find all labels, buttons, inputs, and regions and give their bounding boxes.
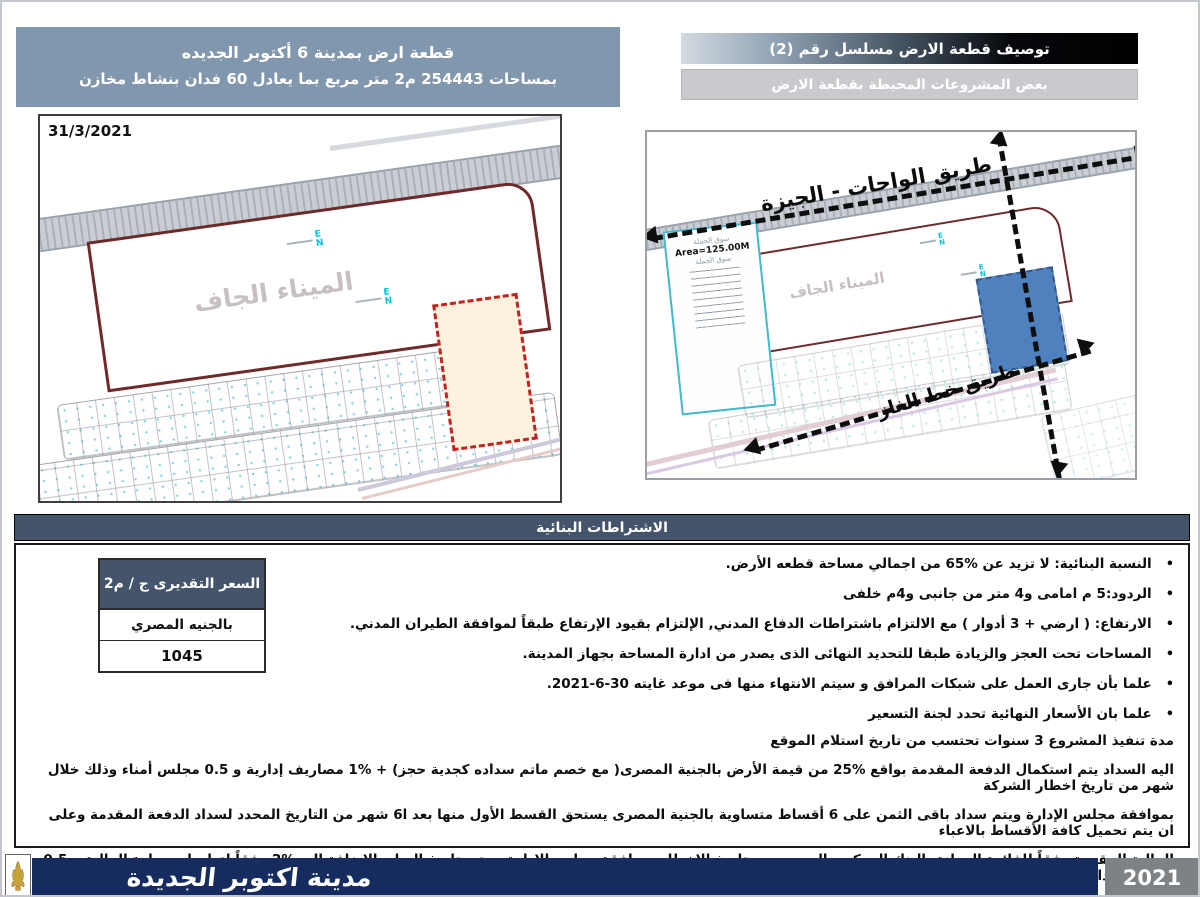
- slide: قطعة ارض بمدينة 6 أكتوبر الجديده بمساحات…: [0, 0, 1200, 897]
- plot-summary-line1: قطعة ارض بمدينة 6 أكتوبر الجديده: [16, 40, 620, 66]
- arrowhead-down: [1048, 461, 1069, 480]
- coordinate-marker: EN: [286, 230, 325, 253]
- conditions-box: النسبة البنائية: لا تزيد عن %65 من اجمال…: [14, 543, 1190, 848]
- slide-title: توصيف قطعة الارض مسلسل رقم (2): [769, 40, 1049, 58]
- map-date: 31/3/2021: [48, 122, 132, 140]
- duration-line: مدة تنفيذ المشروع 3 سنوات تحتسب من تاريخ…: [30, 733, 1174, 749]
- plot-summary-box: قطعة ارض بمدينة 6 أكتوبر الجديده بمساحات…: [16, 27, 620, 107]
- plot-summary-line2: بمساحات 254443 م2 متر مربع بما يعادل 60 …: [16, 66, 620, 92]
- coordinate-text-line: [355, 297, 381, 303]
- slide-subtitle: بعض المشروعات المحيطة بقطعة الارض: [771, 77, 1048, 93]
- road-line: [330, 114, 562, 151]
- price-table-header: السعر التقديرى ج / م2: [100, 560, 264, 610]
- coordinate-text-line: [920, 240, 936, 245]
- dry-port-label: الميناء الجاف: [192, 266, 355, 317]
- condition-item: الردود:5 م امامى و4 متر من جانبى و4م خلف…: [296, 585, 1174, 604]
- price-currency: بالجنيه المصري: [100, 610, 264, 641]
- condition-item: المساحات تحت العجز والزيادة طبقا للتحديد…: [296, 645, 1174, 664]
- eagle-icon: [8, 858, 28, 894]
- easting-northing-icon: EN: [314, 230, 324, 249]
- building-conditions-bar: الاشتراطات البنائية: [14, 514, 1190, 541]
- egypt-eagle-emblem-box: [5, 854, 31, 897]
- dry-port-label: الميناء الجاف: [788, 269, 886, 303]
- footer-bar: مدينة اكتوبر الجديدة: [32, 858, 1098, 897]
- price-table: السعر التقديرى ج / م2 بالجنيه المصري 104…: [98, 558, 266, 673]
- coordinate-text-line: [961, 271, 977, 276]
- coordinates-mini-table: [689, 266, 745, 329]
- building-conditions-title: الاشتراطات البنائية: [536, 520, 668, 536]
- oases-road-dashed-line: [653, 154, 1137, 241]
- condition-item: علما بأن جارى العمل على شبكات المرافق و …: [296, 675, 1174, 694]
- surroundings-map: الميناء الجاف EN EN سوق الجملة Area=125.…: [645, 130, 1137, 480]
- arrowhead-up: [990, 130, 1011, 146]
- easting-northing-icon: EN: [383, 288, 393, 307]
- easting-northing-icon: EN: [938, 232, 946, 247]
- condition-item: النسبة البنائية: لا تزيد عن %65 من اجمال…: [296, 555, 1174, 574]
- footer-city-name: مدينة اكتوبر الجديدة: [30, 863, 468, 892]
- slide-title-bar: توصيف قطعة الارض مسلسل رقم (2): [681, 33, 1138, 64]
- footer-year-badge: 2021: [1105, 858, 1199, 897]
- price-value: 1045: [100, 641, 264, 671]
- payment-line: بموافقة مجلس الإدارة ويتم سداد باقى الثم…: [30, 807, 1174, 839]
- payment-line: اليه السداد يتم استكمال الدفعة المقدمة ب…: [30, 762, 1174, 794]
- coordinate-marker: EN: [919, 232, 946, 250]
- coordinate-marker: EN: [354, 288, 393, 311]
- condition-item: علما بان الأسعار النهائية تحدد لجنة التس…: [296, 705, 1174, 724]
- condition-item: الارتفاع: ( ارضي + 3 أدوار ) مع الالتزام…: [296, 615, 1174, 634]
- slide-subtitle-bar: بعض المشروعات المحيطة بقطعة الارض: [681, 69, 1138, 100]
- conditions-list: النسبة البنائية: لا تزيد عن %65 من اجمال…: [296, 555, 1174, 735]
- site-map-detailed: 31/3/2021 الميناء الجاف EN EN: [38, 114, 562, 503]
- coordinate-text-line: [287, 239, 313, 245]
